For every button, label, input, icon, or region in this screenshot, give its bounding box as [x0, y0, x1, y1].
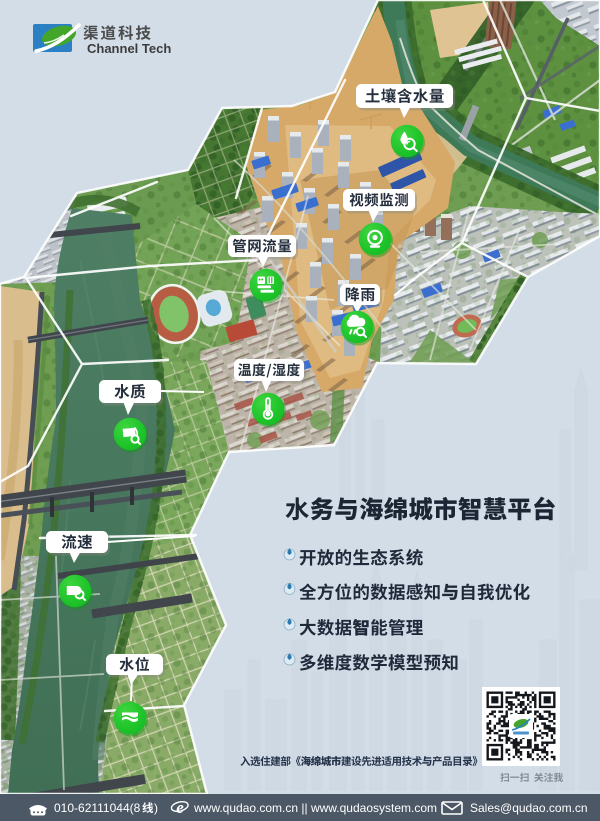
svg-text:Sales@qudao.com.cn: Sales@qudao.com.cn	[470, 801, 588, 815]
svg-text:010-62111044(8: 010-62111044(8	[54, 801, 141, 815]
svg-text:e: e	[176, 798, 184, 817]
svg-text:www.qudao.com.cn || www.quda: www.qudao.com.cn || www.qudaosystem.com	[193, 801, 437, 815]
svg-text:Channel Tech: Channel Tech	[87, 41, 171, 56]
svg-text:): )	[154, 801, 158, 815]
